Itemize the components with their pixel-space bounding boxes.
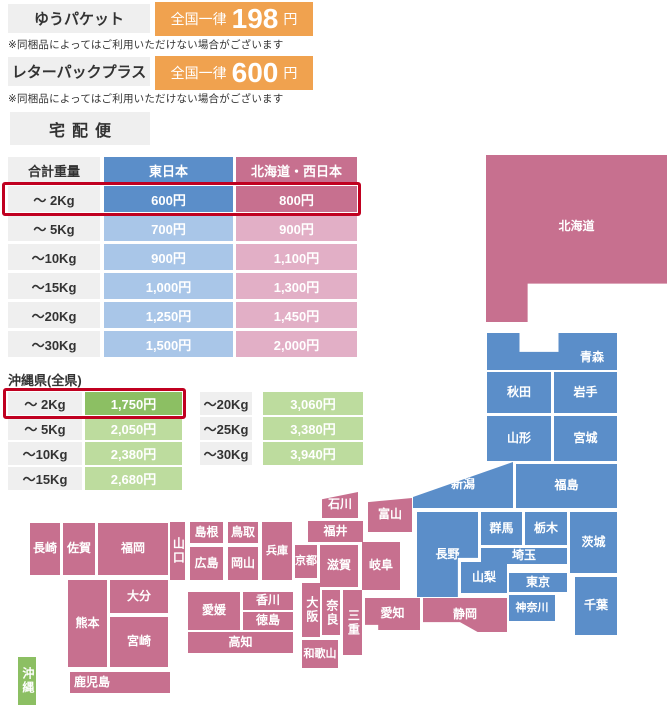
prefecture-saga: 佐賀 (63, 523, 95, 575)
prefecture-label: 熊本 (75, 617, 99, 631)
prefecture-label: 沖縄 (20, 667, 34, 695)
prefecture-fukui: 福井 (308, 521, 363, 542)
prefecture-label: 奈良 (324, 599, 338, 627)
prefecture-label: 静岡 (453, 608, 477, 622)
prefecture-niigata: 新潟 (413, 462, 513, 508)
prefecture-tottori: 鳥取 (228, 522, 258, 543)
prefecture-label: 岡山 (231, 557, 255, 571)
prefecture-label: 鳥取 (231, 526, 255, 540)
prefecture-label: 鹿児島 (74, 676, 110, 690)
prefecture-kagawa: 香川 (243, 592, 293, 610)
prefecture-okayama: 岡山 (228, 547, 258, 580)
prefecture-label: 岩手 (573, 386, 597, 400)
prefecture-iwate: 岩手 (554, 372, 617, 413)
prefecture-yamagata: 山形 (487, 416, 551, 461)
prefecture-osaka: 大阪 (302, 583, 320, 637)
prefecture-label: 東京 (526, 576, 550, 590)
prefecture-kochi: 高知 (188, 632, 293, 653)
prefecture-aomori: 青森 (487, 333, 617, 370)
prefecture-label: 佐賀 (67, 542, 91, 556)
prefecture-yamanashi: 山梨 (461, 562, 507, 593)
prefecture-label: 兵庫 (266, 545, 288, 558)
prefecture-label: 栃木 (534, 522, 558, 536)
prefecture-okinawa: 沖縄 (18, 657, 36, 705)
prefecture-shimane: 島根 (190, 522, 223, 543)
prefecture-label: 高知 (228, 636, 252, 650)
prefecture-hyogo: 兵庫 (262, 522, 292, 580)
prefecture-kumamoto: 熊本 (68, 580, 107, 667)
prefecture-label: 青森 (580, 351, 604, 365)
prefecture-label: 福井 (323, 525, 347, 539)
prefecture-nara: 奈良 (322, 590, 340, 635)
prefecture-label: 大分 (127, 590, 151, 604)
prefecture-label: 香川 (256, 594, 280, 608)
prefecture-tochigi: 栃木 (525, 512, 567, 545)
prefecture-shizuoka: 静岡 (423, 598, 507, 632)
shipping-rates-page: ゆうパケット 全国一律 198 円 ※同梱品によってはご利用いただけない場合がご… (0, 0, 667, 711)
prefecture-nagasaki: 長崎 (30, 523, 60, 575)
prefecture-label: 福岡 (121, 542, 145, 556)
prefecture-label: 長崎 (33, 542, 57, 556)
prefecture-hokkaido: 北海道 (486, 155, 667, 322)
prefecture-miyazaki: 宮崎 (110, 617, 168, 667)
japan-map: 北海道青森秋田岩手山形宮城福島新潟長野群馬栃木茨城埼玉山梨東京神奈川千葉富山石川… (0, 0, 667, 711)
prefecture-label: 大阪 (304, 596, 318, 624)
prefecture-oita: 大分 (110, 580, 168, 613)
prefecture-shiga: 滋賀 (320, 545, 358, 587)
prefecture-kyoto: 京都 (295, 545, 317, 578)
prefecture-label: 茨城 (581, 536, 605, 550)
prefecture-label: 秋田 (507, 386, 531, 400)
prefecture-wakayama: 和歌山 (302, 640, 338, 668)
prefecture-kanagawa: 神奈川 (509, 595, 555, 621)
prefecture-ishikawa: 石川 (322, 492, 358, 518)
prefecture-gifu: 岐阜 (362, 542, 400, 590)
prefecture-label: 徳島 (256, 614, 280, 628)
prefecture-aichi: 愛知 (365, 598, 420, 630)
prefecture-label: 埼玉 (512, 549, 536, 563)
prefecture-label: 千葉 (584, 599, 608, 613)
prefecture-label: 福島 (554, 479, 578, 493)
prefecture-label: 群馬 (489, 522, 513, 536)
prefecture-label: 広島 (194, 557, 218, 571)
prefecture-label: 愛知 (380, 607, 404, 621)
prefecture-ehime: 愛媛 (188, 592, 240, 630)
prefecture-label: 新潟 (451, 478, 475, 492)
prefecture-label: 宮城 (573, 432, 597, 446)
prefecture-label: 宮崎 (127, 635, 151, 649)
prefecture-mie: 三重 (343, 590, 362, 655)
prefecture-ibaraki: 茨城 (570, 512, 617, 573)
prefecture-tokyo: 東京 (509, 573, 567, 592)
prefecture-label: 滋賀 (327, 559, 351, 573)
prefecture-kagoshima: 鹿児島 (70, 672, 170, 693)
prefecture-label: 島根 (194, 526, 218, 540)
prefecture-label: 富山 (378, 508, 402, 522)
prefecture-hiroshima: 広島 (190, 547, 223, 580)
prefecture-label: 北海道 (558, 220, 594, 234)
prefecture-label: 愛媛 (202, 604, 226, 618)
prefecture-label: 山梨 (472, 571, 496, 585)
prefecture-label: 長野 (435, 548, 459, 562)
prefecture-fukuoka: 福岡 (98, 523, 168, 575)
prefecture-yamaguchi: 山口 (170, 522, 185, 580)
prefecture-label: 石川 (328, 498, 352, 512)
prefecture-chiba: 千葉 (575, 577, 617, 635)
prefecture-label: 山口 (171, 537, 185, 565)
prefecture-label: 京都 (295, 555, 317, 568)
prefecture-gunma: 群馬 (481, 512, 522, 545)
prefecture-label: 三重 (346, 609, 360, 637)
prefecture-label: 岐阜 (369, 559, 393, 573)
prefecture-tokushima: 徳島 (243, 612, 293, 630)
prefecture-fukushima: 福島 (516, 464, 617, 508)
prefecture-akita: 秋田 (487, 372, 551, 413)
prefecture-miyagi: 宮城 (554, 416, 617, 461)
prefecture-label: 神奈川 (516, 602, 549, 615)
prefecture-label: 山形 (507, 432, 531, 446)
prefecture-label: 和歌山 (304, 648, 337, 661)
prefecture-toyama: 富山 (368, 498, 412, 532)
